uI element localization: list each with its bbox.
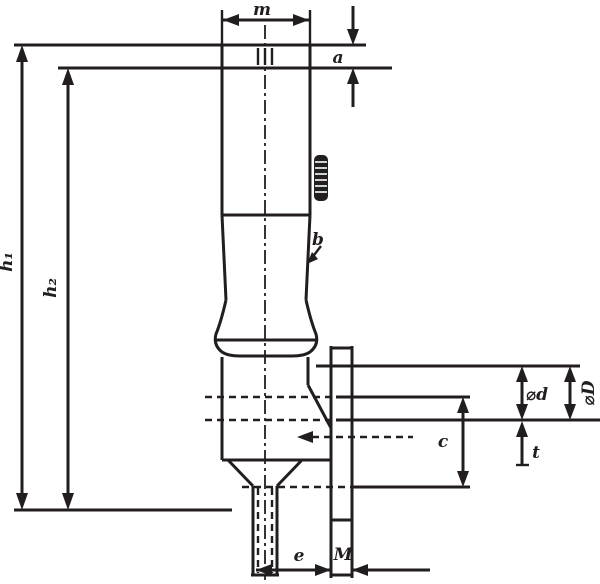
body-chamfer [308, 385, 331, 428]
dim-cap-height: a [332, 6, 359, 107]
dim-label-thread: M [333, 545, 354, 565]
dim-step-depth: t [516, 421, 540, 465]
dim-label-offset: e [294, 546, 305, 566]
part-outline [215, 25, 352, 580]
knob-left-taper [222, 215, 226, 300]
body-right-neck-taper [277, 460, 302, 486]
dim-body-depth: c [438, 397, 469, 487]
dim-thread: M [333, 545, 430, 576]
hidden-feature-leader [297, 431, 413, 443]
dim-height-inner: h₂ [41, 68, 74, 510]
dim-height-outer: h₁ [0, 45, 28, 510]
dim-top-width: m [223, 0, 309, 26]
dim-label-top-width: m [253, 0, 271, 20]
dim-collar-depth-outer: ⌀D [564, 366, 599, 420]
dim-label-collar-depth-outer: ⌀D [579, 380, 599, 405]
dim-offset: e [256, 546, 331, 576]
dim-label-height-inner: h₂ [41, 278, 61, 298]
dim-collar-depth: ⌀d [516, 366, 548, 420]
dimension-drawing: m a h₁ h₂ b ⌀d ⌀D [0, 0, 600, 584]
knob-skirt [215, 300, 317, 356]
knurl-patch [314, 155, 328, 201]
dim-label-height-outer: h₁ [0, 252, 17, 272]
dim-label-collar-depth: ⌀d [526, 385, 548, 405]
body-left-neck-taper [228, 460, 253, 486]
dim-label-body-depth: c [438, 432, 449, 452]
dim-label-cap-height: a [332, 48, 343, 68]
knob-right-taper [306, 215, 310, 300]
technical-drawing-canvas: m a h₁ h₂ b ⌀d ⌀D [0, 0, 600, 584]
dim-label-step-depth: t [532, 443, 540, 463]
dim-label-knurl: b [312, 230, 324, 250]
